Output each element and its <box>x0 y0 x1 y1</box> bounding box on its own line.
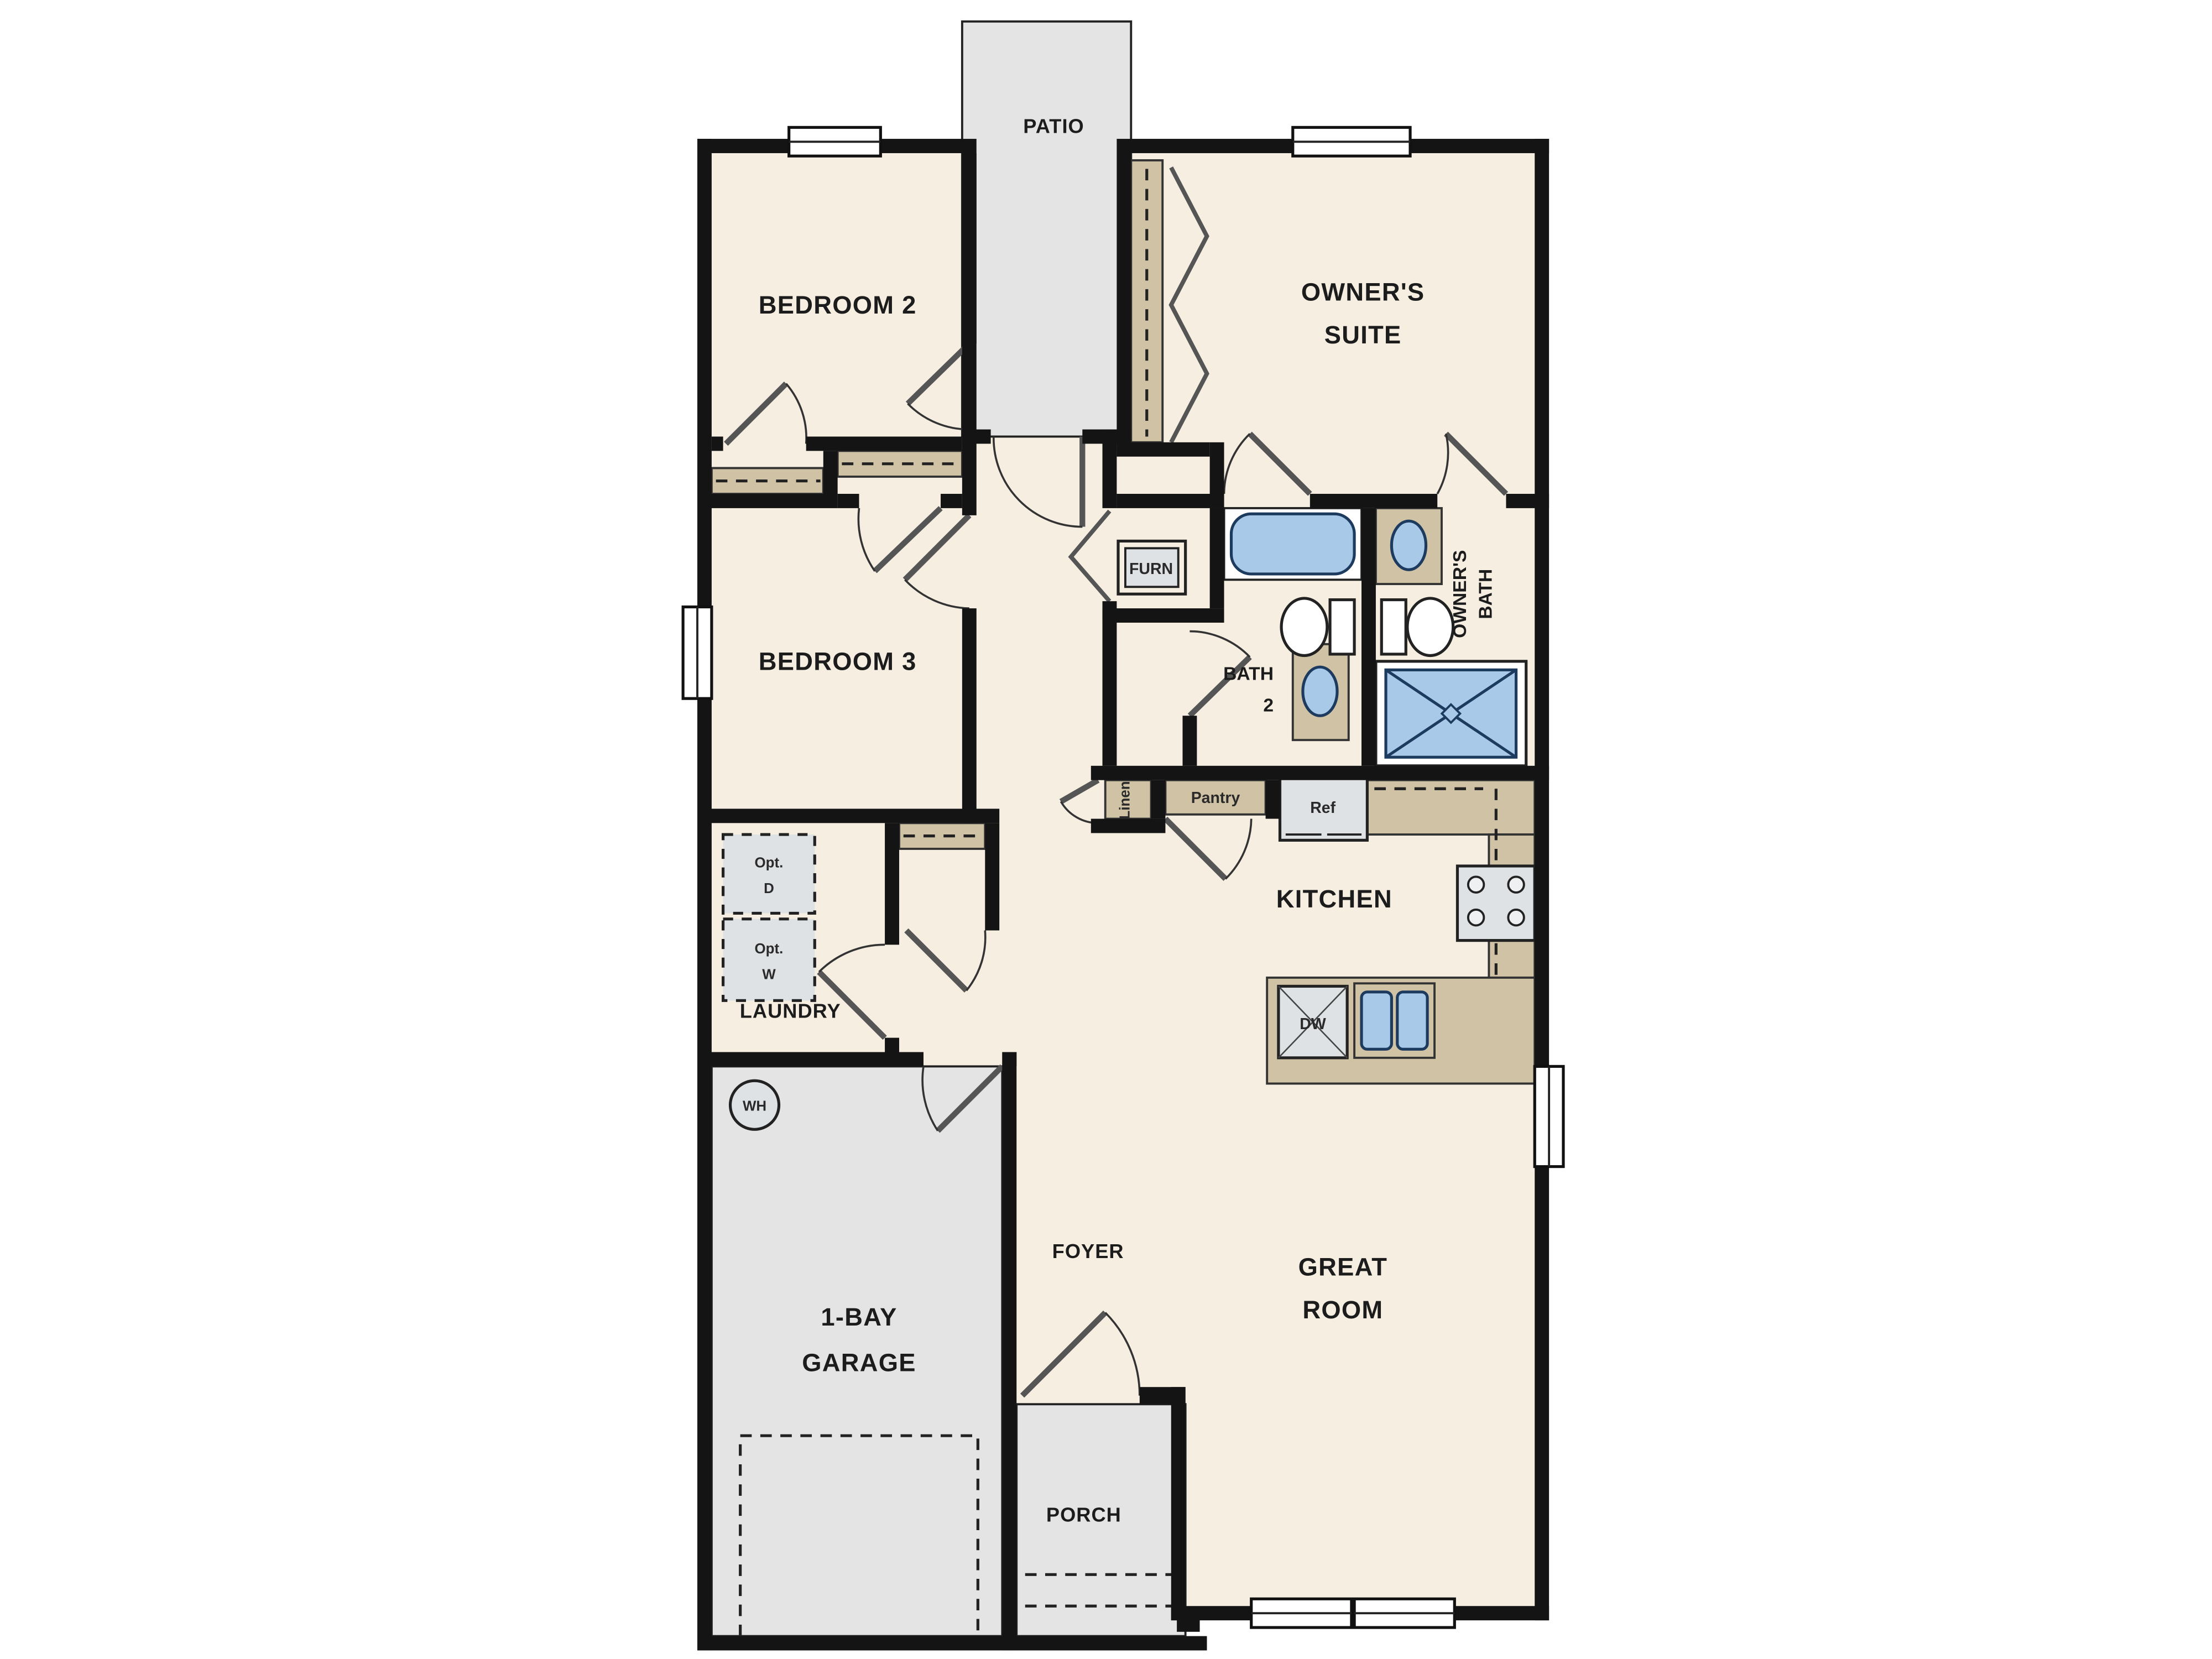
kitchen-counter-top <box>1367 780 1535 834</box>
owners-bath-sink <box>1391 521 1426 570</box>
optional-dryer-box <box>723 834 815 913</box>
sink-bowl-left <box>1361 992 1391 1050</box>
owners-suite-label-line2: SUITE <box>1324 321 1402 349</box>
bedroom2-label: BEDROOM 2 <box>759 291 917 319</box>
sink-bowl-right <box>1397 992 1427 1050</box>
foyer-label: FOYER <box>1052 1240 1124 1262</box>
owners-suite-label-line1: OWNER'S <box>1301 278 1425 306</box>
bath2-label-line2: 2 <box>1263 695 1274 716</box>
linen-label: Linen <box>1118 781 1133 819</box>
bathtub <box>1231 514 1354 574</box>
garage-label-line2: GARAGE <box>802 1349 916 1377</box>
bath2-toilet-tank <box>1330 600 1354 654</box>
owners-bath-label-line2: BATH <box>1476 569 1496 619</box>
laundry-label: LAUNDRY <box>740 999 841 1022</box>
water-heater-label: WH <box>743 1099 766 1114</box>
burner <box>1508 910 1524 925</box>
bath2-toilet-bowl <box>1281 598 1327 656</box>
owners-bath-label-line1: OWNER'S <box>1450 550 1470 638</box>
porch-label: PORCH <box>1046 1504 1121 1526</box>
floor-plan-page: PATIO BEDROOM 2 OWNER'S SUITE BEDROOM 3 … <box>0 0 2212 1659</box>
opt-washer-label-line1: Opt. <box>755 941 784 957</box>
dishwasher-label: DW <box>1300 1015 1326 1033</box>
great-room-label-line2: ROOM <box>1302 1296 1383 1324</box>
pantry-label: Pantry <box>1191 789 1240 807</box>
porch-post <box>1177 1609 1199 1631</box>
burner <box>1468 910 1484 925</box>
patio-area <box>962 22 1131 437</box>
opt-washer-label-line2: W <box>762 967 776 982</box>
optional-washer-box <box>723 919 815 1001</box>
bath2-label-line1: BATH <box>1223 664 1274 685</box>
patio-label: PATIO <box>1023 115 1084 138</box>
kitchen-label: KITCHEN <box>1276 885 1392 913</box>
bath2-sink <box>1303 667 1337 716</box>
opt-dryer-label-line1: Opt. <box>755 855 784 871</box>
burner <box>1508 877 1524 892</box>
great-room-label-line1: GREAT <box>1298 1253 1388 1281</box>
garage-label-line1: 1-BAY <box>821 1303 897 1331</box>
owners-toilet-bowl <box>1407 598 1453 656</box>
floor-plan-drawing: PATIO BEDROOM 2 OWNER'S SUITE BEDROOM 3 … <box>0 0 2212 1659</box>
ref-label: Ref <box>1310 799 1335 817</box>
bedroom3-label: BEDROOM 3 <box>759 647 917 675</box>
burner <box>1468 877 1484 892</box>
range <box>1457 866 1535 941</box>
furnace-label: FURN <box>1129 560 1173 578</box>
owners-toilet-tank <box>1381 600 1406 654</box>
opt-dryer-label-line2: D <box>764 881 774 896</box>
